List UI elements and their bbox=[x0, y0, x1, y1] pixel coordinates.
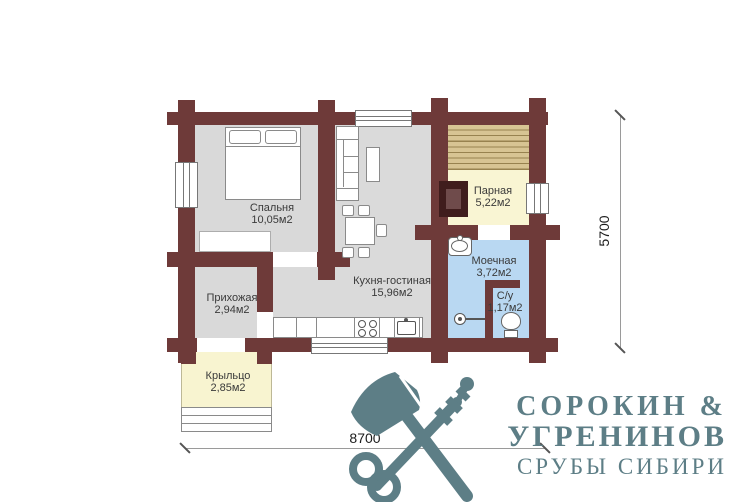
room-label-washing-room: Моечная 3,72м2 bbox=[454, 255, 534, 279]
bed-symbol bbox=[225, 127, 301, 200]
room-area: 1,17м2 bbox=[465, 302, 545, 314]
wall-bottom-segment bbox=[245, 338, 312, 352]
stove-burner-icon bbox=[369, 329, 377, 337]
tv-table-symbol bbox=[366, 147, 380, 182]
room-area: 2,94м2 bbox=[172, 304, 292, 316]
pillow-symbol bbox=[265, 130, 297, 144]
room-label-kitchen-living: Кухня-гостиная 15,96м2 bbox=[332, 275, 452, 299]
kitchen-sink-icon bbox=[397, 321, 416, 335]
logo-axe-key-icon bbox=[337, 368, 512, 502]
dining-table-symbol bbox=[345, 217, 375, 245]
floor-plan: Спальня 10,05м2 Кухня-гостиная 15,96м2 П… bbox=[0, 0, 753, 502]
wall-log-stub bbox=[257, 352, 272, 364]
pillow-symbol bbox=[229, 130, 261, 144]
wall-left bbox=[178, 100, 195, 363]
toilet-bowl-symbol bbox=[501, 312, 521, 330]
dimension-height-value: 5700 bbox=[596, 201, 612, 261]
faucet-icon bbox=[457, 235, 463, 241]
chair-symbol bbox=[376, 224, 387, 237]
toilet-tank-symbol bbox=[504, 330, 518, 338]
room-label-wc: С/у 1,17м2 bbox=[465, 290, 545, 314]
room-label-bedroom: Спальня 10,05м2 bbox=[212, 202, 332, 226]
stove-burner-icon bbox=[358, 320, 366, 328]
faucet-icon bbox=[404, 318, 408, 322]
room-label-hallway: Прихожая 2,94м2 bbox=[172, 292, 292, 316]
porch-step bbox=[181, 423, 272, 432]
stove-burner-icon bbox=[369, 320, 377, 328]
logo-text-line2: УГРЕНИНОВ bbox=[507, 420, 727, 454]
room-area: 15,96м2 bbox=[332, 287, 452, 299]
window-symbol-bedroom bbox=[175, 162, 198, 208]
shower-arm-icon bbox=[466, 318, 485, 320]
room-area: 5,22м2 bbox=[453, 197, 533, 209]
room-area: 10,05м2 bbox=[212, 214, 332, 226]
room-name: Кухня-гостиная bbox=[332, 275, 452, 287]
shower-mixer-icon bbox=[454, 313, 466, 325]
room-label-porch: Крыльцо 2,85м2 bbox=[168, 370, 288, 394]
room-name: Крыльцо bbox=[168, 370, 288, 382]
wall-steamroom-bottom-segment bbox=[510, 225, 560, 240]
wardrobe-symbol bbox=[199, 231, 271, 252]
room-area: 2,85м2 bbox=[168, 382, 288, 394]
room-name: Моечная bbox=[454, 255, 534, 267]
sofa-symbol bbox=[336, 126, 359, 201]
window-symbol-kitchen bbox=[311, 337, 388, 354]
chair-symbol bbox=[342, 205, 354, 216]
washbasin-symbol bbox=[448, 237, 472, 256]
logo-text-line1: СОРОКИН & bbox=[516, 391, 727, 423]
room-name: С/у bbox=[465, 290, 545, 302]
chair-symbol bbox=[358, 205, 370, 216]
wall-middle-segment bbox=[167, 252, 273, 267]
kitchen-counter-symbol bbox=[273, 317, 423, 338]
sauna-bench-symbol bbox=[448, 125, 529, 170]
wall-log-stub bbox=[181, 352, 196, 364]
logo-text-line3: СРУБЫ СИБИРИ bbox=[517, 454, 727, 480]
stove-burner-icon bbox=[358, 329, 366, 337]
dimension-line-height bbox=[620, 115, 621, 348]
room-name: Спальня bbox=[212, 202, 332, 214]
room-area: 3,72м2 bbox=[454, 267, 534, 279]
room-name: Парная bbox=[453, 185, 533, 197]
room-name: Прихожая bbox=[172, 292, 292, 304]
room-label-steam-room: Парная 5,22м2 bbox=[453, 185, 533, 209]
chair-symbol bbox=[358, 247, 370, 258]
chair-symbol bbox=[342, 247, 354, 258]
window-symbol-living bbox=[355, 110, 412, 127]
